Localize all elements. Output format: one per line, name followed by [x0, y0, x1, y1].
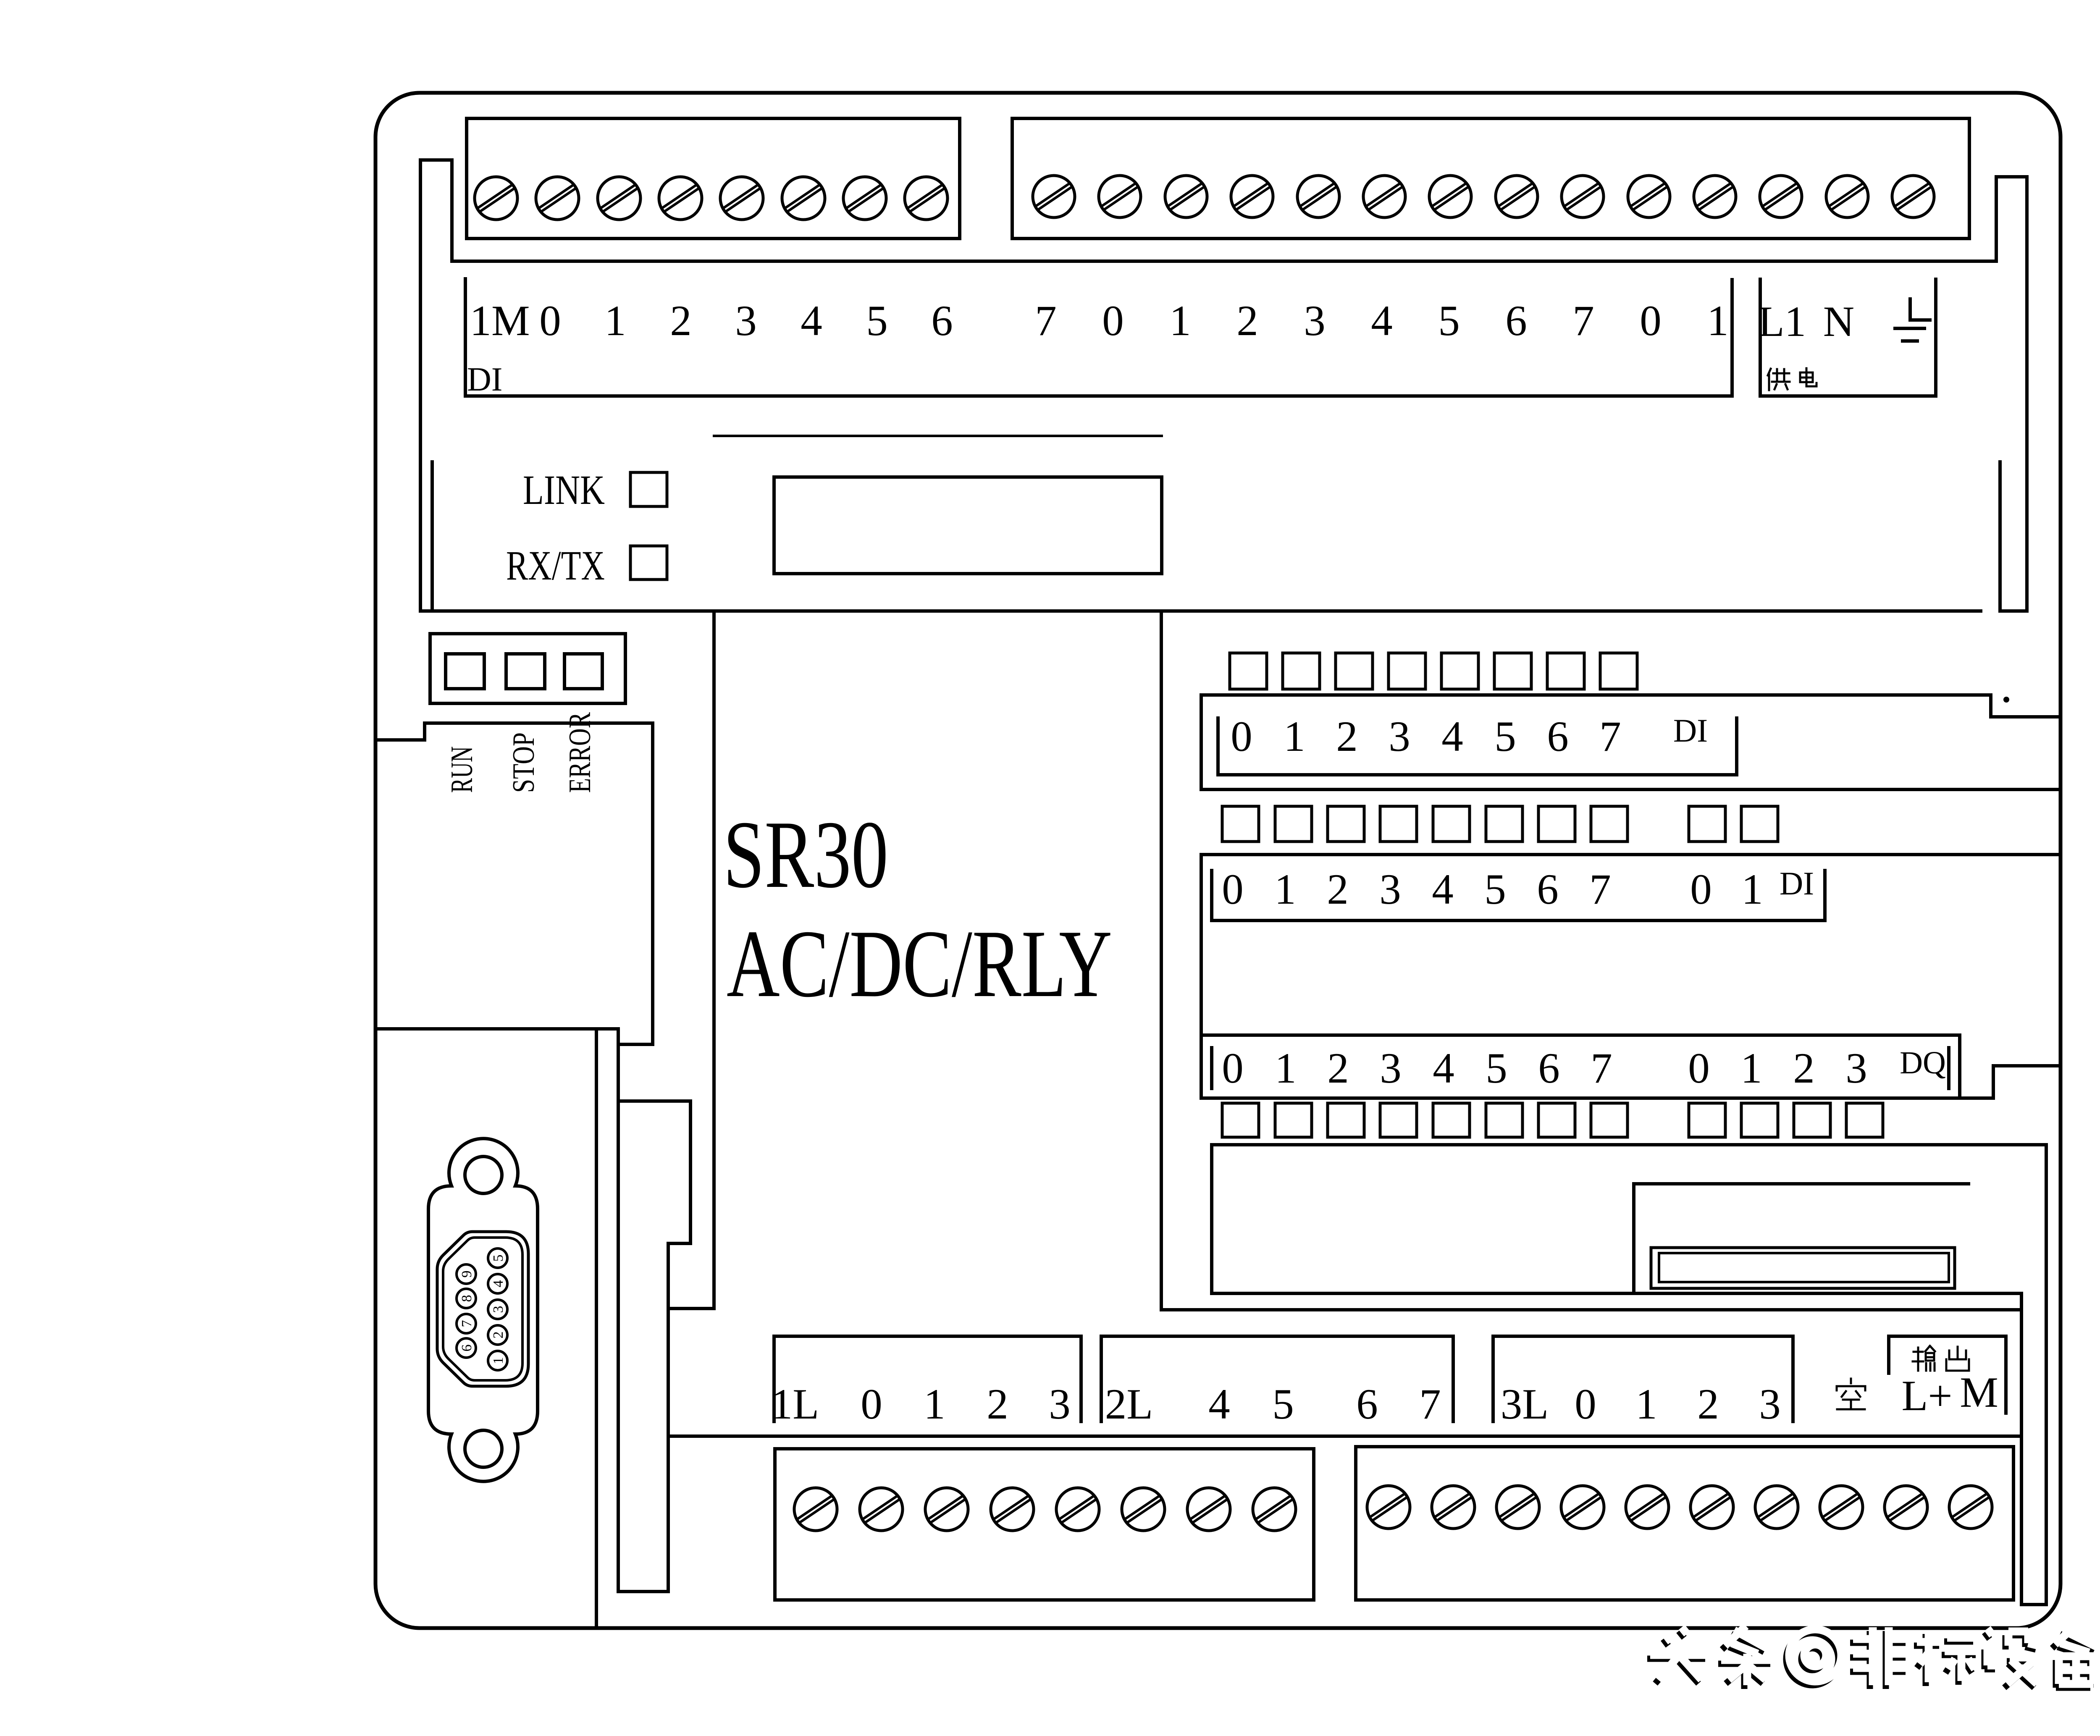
svg-text:3: 3 — [1380, 1044, 1402, 1092]
svg-text:RUN: RUN — [445, 746, 479, 793]
svg-text:3: 3 — [1049, 1380, 1071, 1428]
svg-text:3: 3 — [1845, 1044, 1867, 1092]
svg-text:2: 2 — [1327, 1044, 1349, 1092]
svg-text:7: 7 — [1419, 1380, 1441, 1428]
svg-text:0: 0 — [1688, 1044, 1710, 1092]
svg-text:5: 5 — [866, 297, 888, 345]
svg-text:4: 4 — [491, 1280, 506, 1288]
svg-text:STOP: STOP — [507, 732, 541, 793]
svg-text:1: 1 — [491, 1357, 506, 1364]
svg-text:1: 1 — [1284, 713, 1305, 760]
svg-text:1: 1 — [1707, 297, 1729, 345]
svg-text:1: 1 — [1274, 865, 1296, 913]
svg-text:1: 1 — [1169, 297, 1191, 345]
svg-text:0: 0 — [1640, 297, 1662, 345]
svg-text:2: 2 — [1697, 1380, 1719, 1428]
svg-text:4: 4 — [1208, 1380, 1230, 1428]
svg-text:2: 2 — [1336, 713, 1358, 760]
svg-text:1: 1 — [1741, 865, 1763, 913]
svg-text:L1: L1 — [1758, 298, 1806, 346]
svg-text:LINK: LINK — [523, 467, 605, 513]
svg-text:1: 1 — [1635, 1380, 1657, 1428]
svg-text:1: 1 — [924, 1380, 945, 1428]
svg-text:SR30: SR30 — [723, 801, 888, 908]
svg-text:4: 4 — [801, 297, 822, 345]
svg-text:0: 0 — [1102, 297, 1124, 345]
svg-text:1M: 1M — [470, 297, 530, 345]
svg-text:N: N — [1823, 298, 1854, 346]
svg-text:7: 7 — [459, 1320, 475, 1327]
svg-text:5: 5 — [1438, 297, 1460, 345]
svg-text:6: 6 — [1547, 713, 1569, 760]
svg-text:2: 2 — [1793, 1044, 1815, 1092]
svg-text:2: 2 — [987, 1380, 1008, 1428]
svg-text:0: 0 — [1231, 713, 1252, 760]
svg-text:3: 3 — [1379, 865, 1401, 913]
svg-text:3: 3 — [1759, 1380, 1781, 1428]
svg-text:5: 5 — [1272, 1380, 1294, 1428]
svg-text:RX/TX: RX/TX — [506, 542, 605, 589]
svg-text:3: 3 — [491, 1306, 506, 1313]
svg-text:L+: L+ — [1901, 1372, 1952, 1420]
svg-text:DQ: DQ — [1900, 1045, 1946, 1080]
svg-text:M: M — [1960, 1369, 1998, 1416]
svg-text:2: 2 — [1327, 865, 1349, 913]
svg-text:0: 0 — [861, 1380, 882, 1428]
svg-text:2: 2 — [1236, 297, 1258, 345]
svg-text:7: 7 — [1572, 297, 1594, 345]
svg-text:DI: DI — [1780, 865, 1814, 902]
svg-text:6: 6 — [459, 1345, 475, 1352]
svg-text:4: 4 — [1441, 713, 1463, 760]
svg-text:6: 6 — [1537, 865, 1559, 913]
svg-text:AC/DC/RLY: AC/DC/RLY — [727, 910, 1112, 1017]
svg-text:0: 0 — [1690, 865, 1712, 913]
svg-text:1L: 1L — [771, 1380, 819, 1428]
svg-text:9: 9 — [459, 1271, 475, 1278]
svg-text:8: 8 — [459, 1295, 475, 1302]
svg-text:2: 2 — [491, 1332, 506, 1339]
svg-text:2L: 2L — [1105, 1380, 1153, 1428]
svg-text:DI: DI — [467, 361, 502, 398]
svg-text:4: 4 — [1433, 1044, 1454, 1092]
svg-text:5: 5 — [491, 1255, 506, 1262]
svg-text:0: 0 — [539, 297, 561, 345]
svg-text:1: 1 — [1275, 1044, 1297, 1092]
svg-text:6: 6 — [1538, 1044, 1560, 1092]
svg-text:7: 7 — [1589, 865, 1611, 913]
svg-text:DI: DI — [1673, 712, 1708, 749]
svg-text:7: 7 — [1591, 1044, 1612, 1092]
svg-text:2: 2 — [670, 297, 692, 345]
svg-text:1: 1 — [604, 297, 626, 345]
svg-text:3: 3 — [735, 297, 757, 345]
svg-text:6: 6 — [1356, 1380, 1378, 1428]
svg-text:3: 3 — [1304, 297, 1326, 345]
svg-text:0: 0 — [1222, 1044, 1244, 1092]
svg-text:0: 0 — [1222, 865, 1244, 913]
svg-text:3L: 3L — [1501, 1380, 1549, 1428]
svg-text:6: 6 — [1505, 297, 1527, 345]
svg-text:4: 4 — [1371, 297, 1393, 345]
svg-text:3: 3 — [1389, 713, 1410, 760]
svg-text:6: 6 — [931, 297, 953, 345]
svg-text:0: 0 — [1575, 1380, 1596, 1428]
svg-text:7: 7 — [1035, 297, 1057, 345]
svg-text:5: 5 — [1494, 713, 1516, 760]
svg-text:1: 1 — [1740, 1044, 1762, 1092]
svg-text:4: 4 — [1432, 865, 1454, 913]
svg-text:5: 5 — [1486, 1044, 1507, 1092]
svg-text:5: 5 — [1484, 865, 1506, 913]
svg-text:7: 7 — [1599, 713, 1621, 760]
